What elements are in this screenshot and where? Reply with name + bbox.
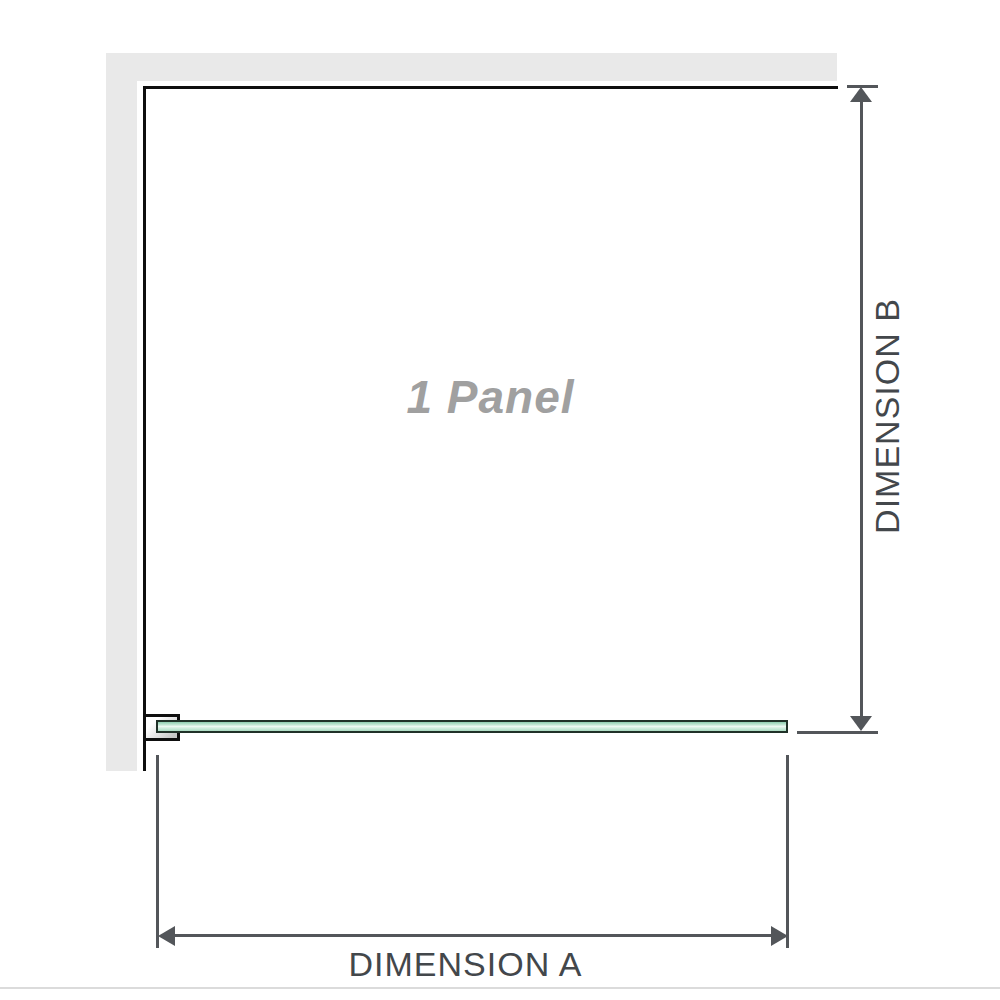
dim-b-label: DIMENSION B	[869, 266, 905, 566]
panel-label: 1 Panel	[143, 371, 838, 423]
dim-b-line	[860, 99, 863, 718]
diagram-canvas: 1 Panel DIMENSION B DIMENSION A	[0, 0, 1000, 1000]
arrow-up-icon	[850, 87, 872, 102]
glass-panel	[156, 720, 788, 733]
wall-top	[106, 53, 837, 81]
dim-a-extension-right	[786, 755, 789, 948]
panel-outline-left	[143, 86, 146, 771]
page-divider	[0, 987, 1000, 989]
dim-a-label: DIMENSION A	[143, 945, 788, 984]
panel-outline-top	[143, 86, 838, 89]
dim-b-tick-bottom	[797, 731, 878, 734]
wall-left	[106, 53, 137, 771]
dim-a-line	[173, 934, 773, 937]
arrow-down-icon	[850, 716, 872, 731]
arrow-left-icon	[158, 926, 175, 946]
arrow-right-icon	[771, 926, 788, 946]
dim-a-extension-left	[156, 755, 159, 948]
